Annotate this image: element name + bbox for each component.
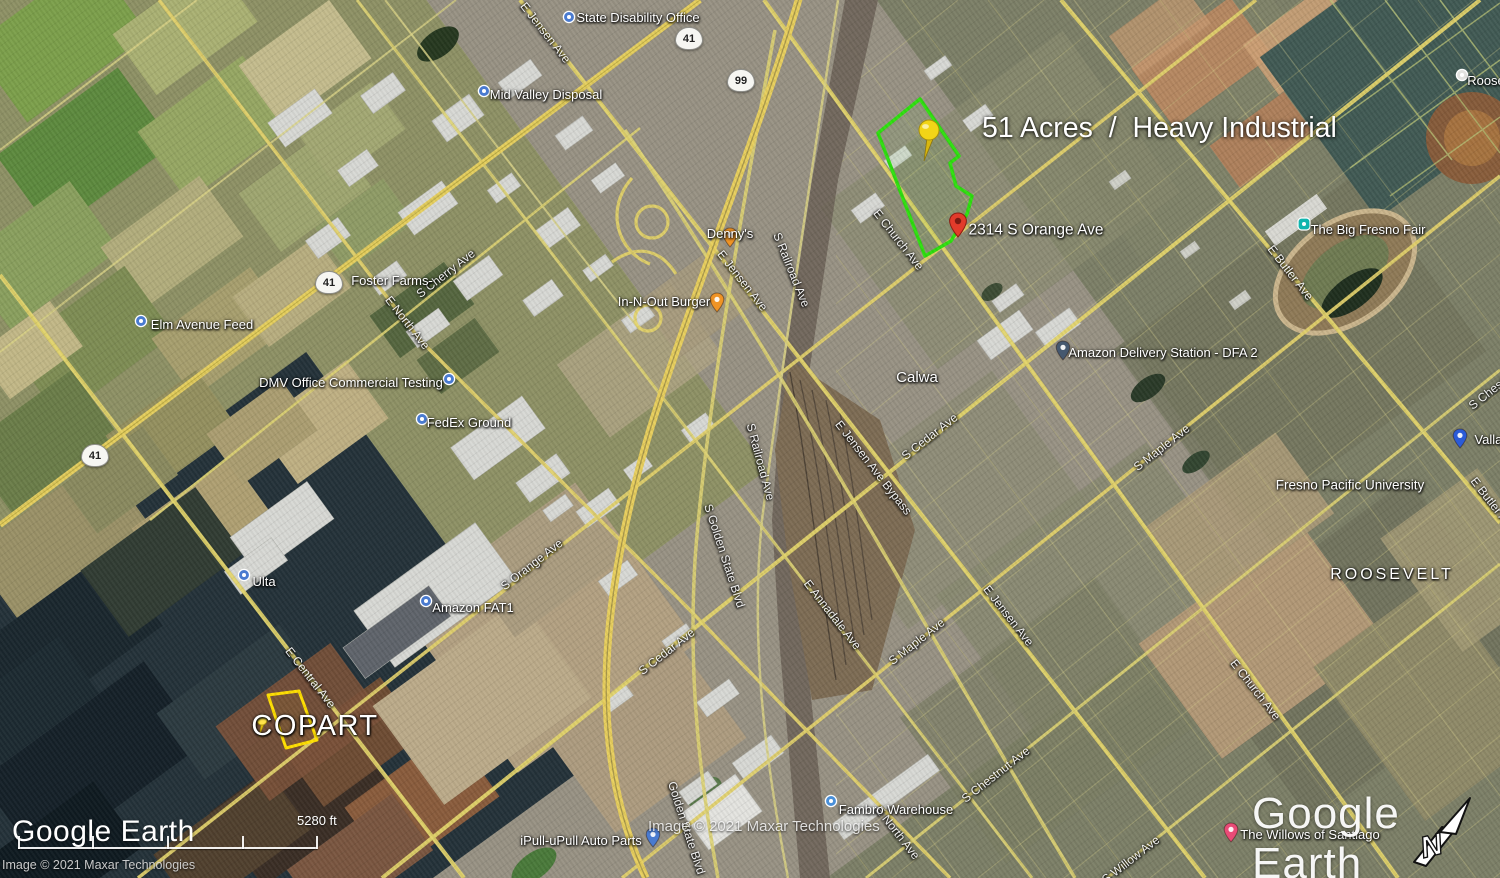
place-state-disability-office-icon[interactable] xyxy=(562,10,576,29)
area-fresno-pacific-university: Fresno Pacific University xyxy=(1276,479,1425,494)
place-state-disability-office[interactable]: State Disability Office xyxy=(576,11,699,25)
place-ipull-upull[interactable]: iPull-uPull Auto Parts xyxy=(520,834,641,848)
area-copart: COPART xyxy=(251,711,378,743)
place-amazon-delivery-dfa2[interactable]: Amazon Delivery Station - DFA 2 xyxy=(1068,346,1257,360)
place-fambro-warehouse[interactable]: Fambro Warehouse xyxy=(839,803,953,817)
area-roosevelt: ROOSEVELT xyxy=(1330,566,1454,584)
scale-tick xyxy=(167,836,169,849)
highway-shield-41: 41 xyxy=(315,271,343,294)
highway-shield-41: 41 xyxy=(675,27,703,50)
place-willows-of-santiago-icon[interactable] xyxy=(1223,822,1239,848)
place-in-n-out-burger-icon[interactable] xyxy=(709,292,725,318)
scale-tick xyxy=(92,836,94,849)
place-fambro-warehouse-icon[interactable] xyxy=(824,794,838,813)
area-calwa: Calwa xyxy=(896,370,938,387)
place-mid-valley-disposal[interactable]: Mid Valley Disposal xyxy=(490,88,602,102)
place-ulta-icon[interactable] xyxy=(237,568,251,587)
place-elm-avenue-feed[interactable]: Elm Avenue Feed xyxy=(151,318,253,332)
highway-shield-41: 41 xyxy=(81,444,109,467)
address-pin-icon[interactable] xyxy=(948,212,968,243)
place-big-fresno-fair-icon[interactable] xyxy=(1297,217,1311,236)
property-title: 51 Acres / Heavy Industrial xyxy=(982,112,1337,145)
place-dmv-office[interactable]: DMV Office Commercial Testing xyxy=(259,376,443,390)
scale-tick xyxy=(242,836,244,849)
copyright-text-center: Image © 2021 Maxar Technologies xyxy=(648,818,880,835)
label-address[interactable]: 2314 S Orange Ave xyxy=(968,221,1103,238)
place-dennys[interactable]: Denny's xyxy=(707,227,754,241)
scale-distance-label: 5280 ft xyxy=(297,813,337,828)
place-fedex-ground[interactable]: FedEx Ground xyxy=(427,416,512,430)
google-earth-viewport[interactable]: E Jensen AveE Jensen AveE Jensen AveE Je… xyxy=(0,0,1500,878)
scale-tick xyxy=(18,836,20,849)
place-foster-farms[interactable]: Foster Farms- xyxy=(351,274,433,288)
place-vallarta[interactable]: Vallarta xyxy=(1474,433,1500,447)
place-dmv-office-icon[interactable] xyxy=(442,372,456,391)
copyright-text-left: Image © 2021 Maxar Technologies xyxy=(2,858,195,872)
highway-shield-99: 99 xyxy=(727,69,755,92)
place-vallarta-icon[interactable] xyxy=(1452,428,1468,454)
place-ulta[interactable]: Ulta xyxy=(252,575,275,589)
place-elm-avenue-feed-icon[interactable] xyxy=(134,314,148,333)
place-amazon-fat1[interactable]: Amazon FAT1 xyxy=(432,601,513,615)
place-amazon-fat1-icon[interactable] xyxy=(419,594,433,613)
place-in-n-out-burger[interactable]: In-N-Out Burger xyxy=(618,295,710,309)
north-arrow-icon: N xyxy=(1396,786,1496,876)
place-big-fresno-fair[interactable]: The Big Fresno Fair xyxy=(1311,223,1426,237)
scale-tick xyxy=(316,836,318,849)
place-roosevelt-corner[interactable]: Roose xyxy=(1467,74,1500,88)
property-pushpin-icon[interactable] xyxy=(914,119,944,168)
